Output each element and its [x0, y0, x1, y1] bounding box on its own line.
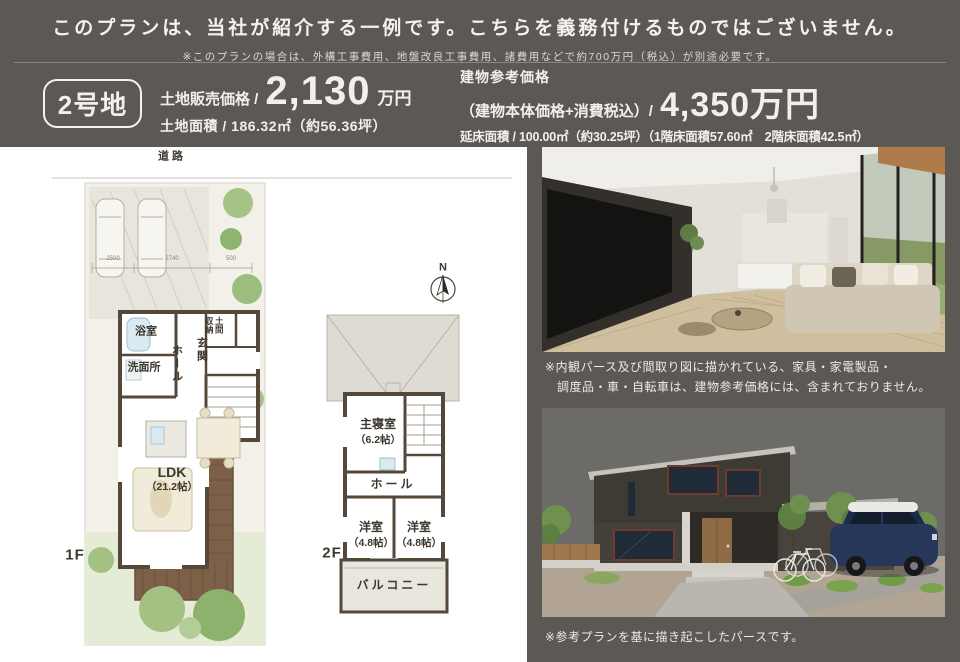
disclaimer-banner: このプランは、当社が紹介する一例です。こちらを義務付けるものではございません。 …	[0, 0, 960, 64]
interior-caption-line2: 調度品・車・自転車は、建物参考価格には、含まれておりません。	[545, 378, 931, 398]
flyer-page: このプランは、当社が紹介する一例です。こちらを義務付けるものではございません。 …	[0, 0, 960, 662]
room-label-doma-1: 土間	[215, 317, 224, 334]
room-label-master-size: （6.2帖）	[355, 435, 401, 446]
land-price-block: 土地販売価格 / 2,130 万円 土地面積 / 186.32㎡（約56.36坪…	[160, 71, 411, 136]
road-label: 道路	[158, 152, 186, 163]
dim-label-1: 2500	[106, 256, 119, 262]
room-label-washroom: 洗面所	[128, 363, 161, 374]
room-label-entrance: 玄関	[196, 337, 207, 363]
room-label-hall-1f: ホール	[171, 345, 182, 384]
exterior-caption: ※参考プランを基に描き起こしたパースです。	[545, 628, 804, 648]
room-label-west2-size: （4.8帖）	[396, 538, 442, 549]
room-label-west1-size: （4.8帖）	[348, 538, 394, 549]
lot-number-label: 2号地	[58, 85, 127, 122]
banner-title: このプランは、当社が紹介する一例です。こちらを義務付けるものではございません。	[0, 13, 960, 40]
floorplan-drawing	[0, 147, 527, 662]
building-price-value: 4,350万円	[660, 88, 820, 124]
dim-label-2: 2740	[165, 256, 178, 262]
building-price-block: 建物参考価格 （建物本体価格+消費税込）/ 4,350万円 延床面積 / 100…	[460, 67, 869, 145]
room-label-bath: 浴室	[135, 327, 157, 338]
floor1-label: 1F	[65, 548, 85, 563]
floor2-label: 2F	[322, 546, 342, 561]
room-label-balcony: バルコニー	[357, 579, 432, 591]
compass-n-label: N	[439, 263, 447, 274]
exterior-photo	[542, 408, 945, 617]
building-area-line: 延床面積 / 100.00㎡（約30.25坪）（1階床面積57.60㎡ 2階床面…	[460, 126, 869, 145]
exterior-render-illustration	[542, 408, 945, 617]
land-price-unit: 万円	[377, 84, 411, 109]
land-price-label: 土地販売価格 /	[160, 88, 258, 109]
building-price-sublabel: （建物本体価格+消費税込）/	[460, 100, 653, 121]
lot-number-badge: 2号地	[43, 79, 142, 128]
room-label-hall-2f: ホール	[370, 478, 415, 490]
room-label-west1: 洋室	[359, 521, 383, 533]
room-label-doma-2: 収納	[205, 317, 214, 334]
room-label-ldk-size: （21.2帖）	[146, 482, 198, 493]
land-price-value: 2,130	[265, 71, 370, 111]
building-price-label: 建物参考価格	[460, 67, 869, 87]
interior-caption: ※内観パース及び間取り図に描かれている、家具・家電製品・ 調度品・車・自転車は、…	[545, 358, 931, 398]
floorplan-panel: 道路 2500 2740 500 浴室 洗面所 ホール 玄関 土間 収納 LDK…	[0, 147, 527, 662]
room-label-west2: 洋室	[407, 521, 431, 533]
banner-divider	[14, 62, 946, 63]
room-label-ldk: LDK	[158, 465, 187, 479]
interior-photo	[542, 147, 945, 352]
land-area-line: 土地面積 / 186.32㎡（約56.36坪）	[160, 116, 411, 136]
interior-render-illustration	[542, 147, 945, 352]
dim-label-3: 500	[226, 256, 236, 262]
room-label-master: 主寝室	[360, 418, 396, 430]
interior-caption-line1: ※内観パース及び間取り図に描かれている、家具・家電製品・	[545, 358, 931, 378]
